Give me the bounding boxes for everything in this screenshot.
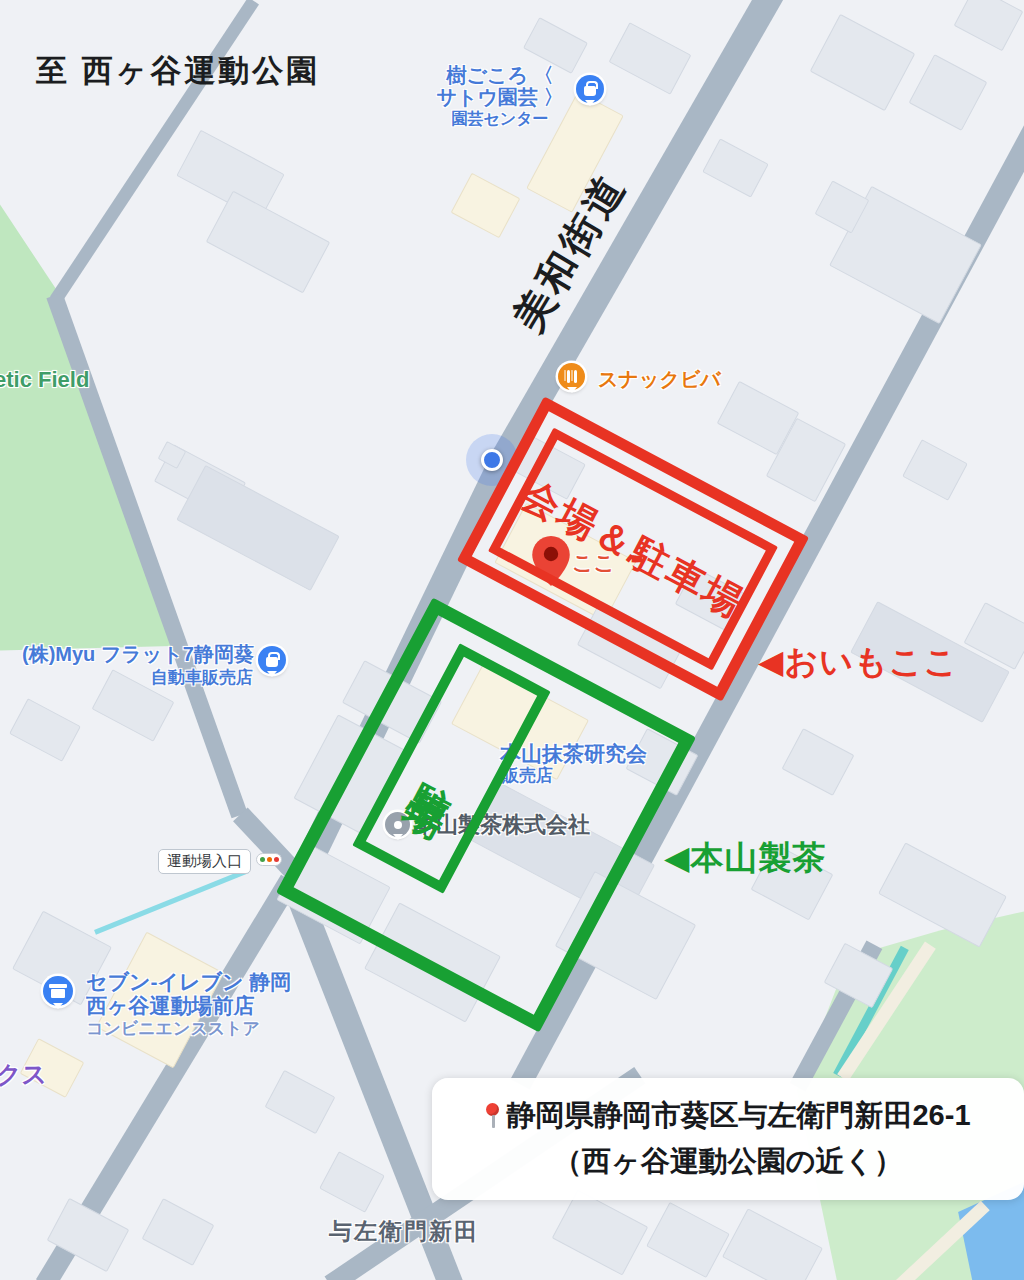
shopping-bag-icon[interactable] — [258, 646, 286, 674]
address-text1: 静岡県静岡市葵区与左衛門新田26-1 — [506, 1096, 970, 1136]
direction-note: 至 西ヶ谷運動公園 — [36, 50, 320, 92]
bag-glyph — [584, 86, 596, 96]
building — [782, 728, 855, 796]
poi-snack-label[interactable]: スナックビバ — [598, 366, 721, 393]
building — [265, 1070, 336, 1134]
building — [552, 1189, 648, 1275]
athletic-field-label: etic Field — [0, 367, 89, 393]
building — [809, 13, 915, 110]
address-text2: （西ヶ谷運動公園の近く） — [553, 1142, 903, 1182]
building — [176, 465, 339, 591]
store-glyph — [51, 989, 65, 998]
shopping-bag-icon[interactable] — [576, 75, 604, 103]
venue-callout: ◀おいもここ — [758, 640, 958, 685]
purple-poi-partial-label: クス — [0, 1058, 47, 1091]
poi-garden-center-line3: 園芸センター — [430, 108, 570, 130]
bus-stop-label[interactable]: 運動場入口 — [158, 849, 251, 874]
address-card: 静岡県静岡市葵区与左衛門新田26-1 （西ヶ谷運動公園の近く） — [432, 1078, 1024, 1200]
parking-box-label: 駐車場 — [422, 745, 482, 792]
building — [9, 698, 81, 761]
poi-garden-center-line2: サトウ園芸 〉 — [430, 86, 570, 108]
building — [206, 191, 330, 294]
building — [909, 54, 988, 131]
poi-garden-center-label[interactable]: 樹ごころ 〈 サトウ園芸 〉 園芸センター — [430, 64, 570, 130]
district-label: 与左衛門新田 — [329, 1216, 479, 1247]
poi-myu-label[interactable]: (株)Myu フラット7静岡葵 — [22, 641, 254, 668]
bag-glyph — [266, 657, 278, 667]
poi-myu-category: 自動車販売店 — [148, 666, 253, 689]
convenience-store-icon[interactable] — [43, 976, 73, 1006]
waterway — [94, 868, 249, 934]
venue-box-inner: 会場＆駐車場 — [488, 428, 778, 671]
parking-callout: ◀本山製茶 — [664, 836, 826, 881]
building — [142, 1198, 215, 1266]
building — [450, 172, 520, 238]
building — [609, 22, 692, 95]
map-canvas[interactable]: 樹ごころ 〈 サトウ園芸 〉 園芸センター スナックビバ (株)Myu フラット… — [0, 0, 1024, 1280]
venue-box-label: 会場＆駐車場 — [512, 469, 753, 630]
fork-knife-glyph — [567, 370, 577, 383]
red-pushpin-icon — [485, 1103, 500, 1130]
traffic-light-icon — [256, 853, 282, 866]
building — [702, 138, 768, 197]
restaurant-icon[interactable] — [558, 363, 585, 390]
location-dot — [481, 449, 503, 471]
building — [646, 1202, 730, 1278]
address-line1: 静岡県静岡市葵区与左衛門新田26-1 — [485, 1096, 970, 1136]
address-line2: （西ヶ谷運動公園の近く） — [553, 1142, 903, 1182]
building — [902, 439, 968, 500]
building — [319, 1151, 385, 1212]
poi-seven-line2[interactable]: 西ヶ谷運動場前店 — [86, 992, 255, 1020]
building — [953, 0, 1023, 51]
building — [722, 1208, 823, 1280]
poi-garden-center-line1: 樹ごころ 〈 — [430, 64, 570, 86]
poi-seven-category: コンビニエンスストア — [86, 1017, 260, 1040]
